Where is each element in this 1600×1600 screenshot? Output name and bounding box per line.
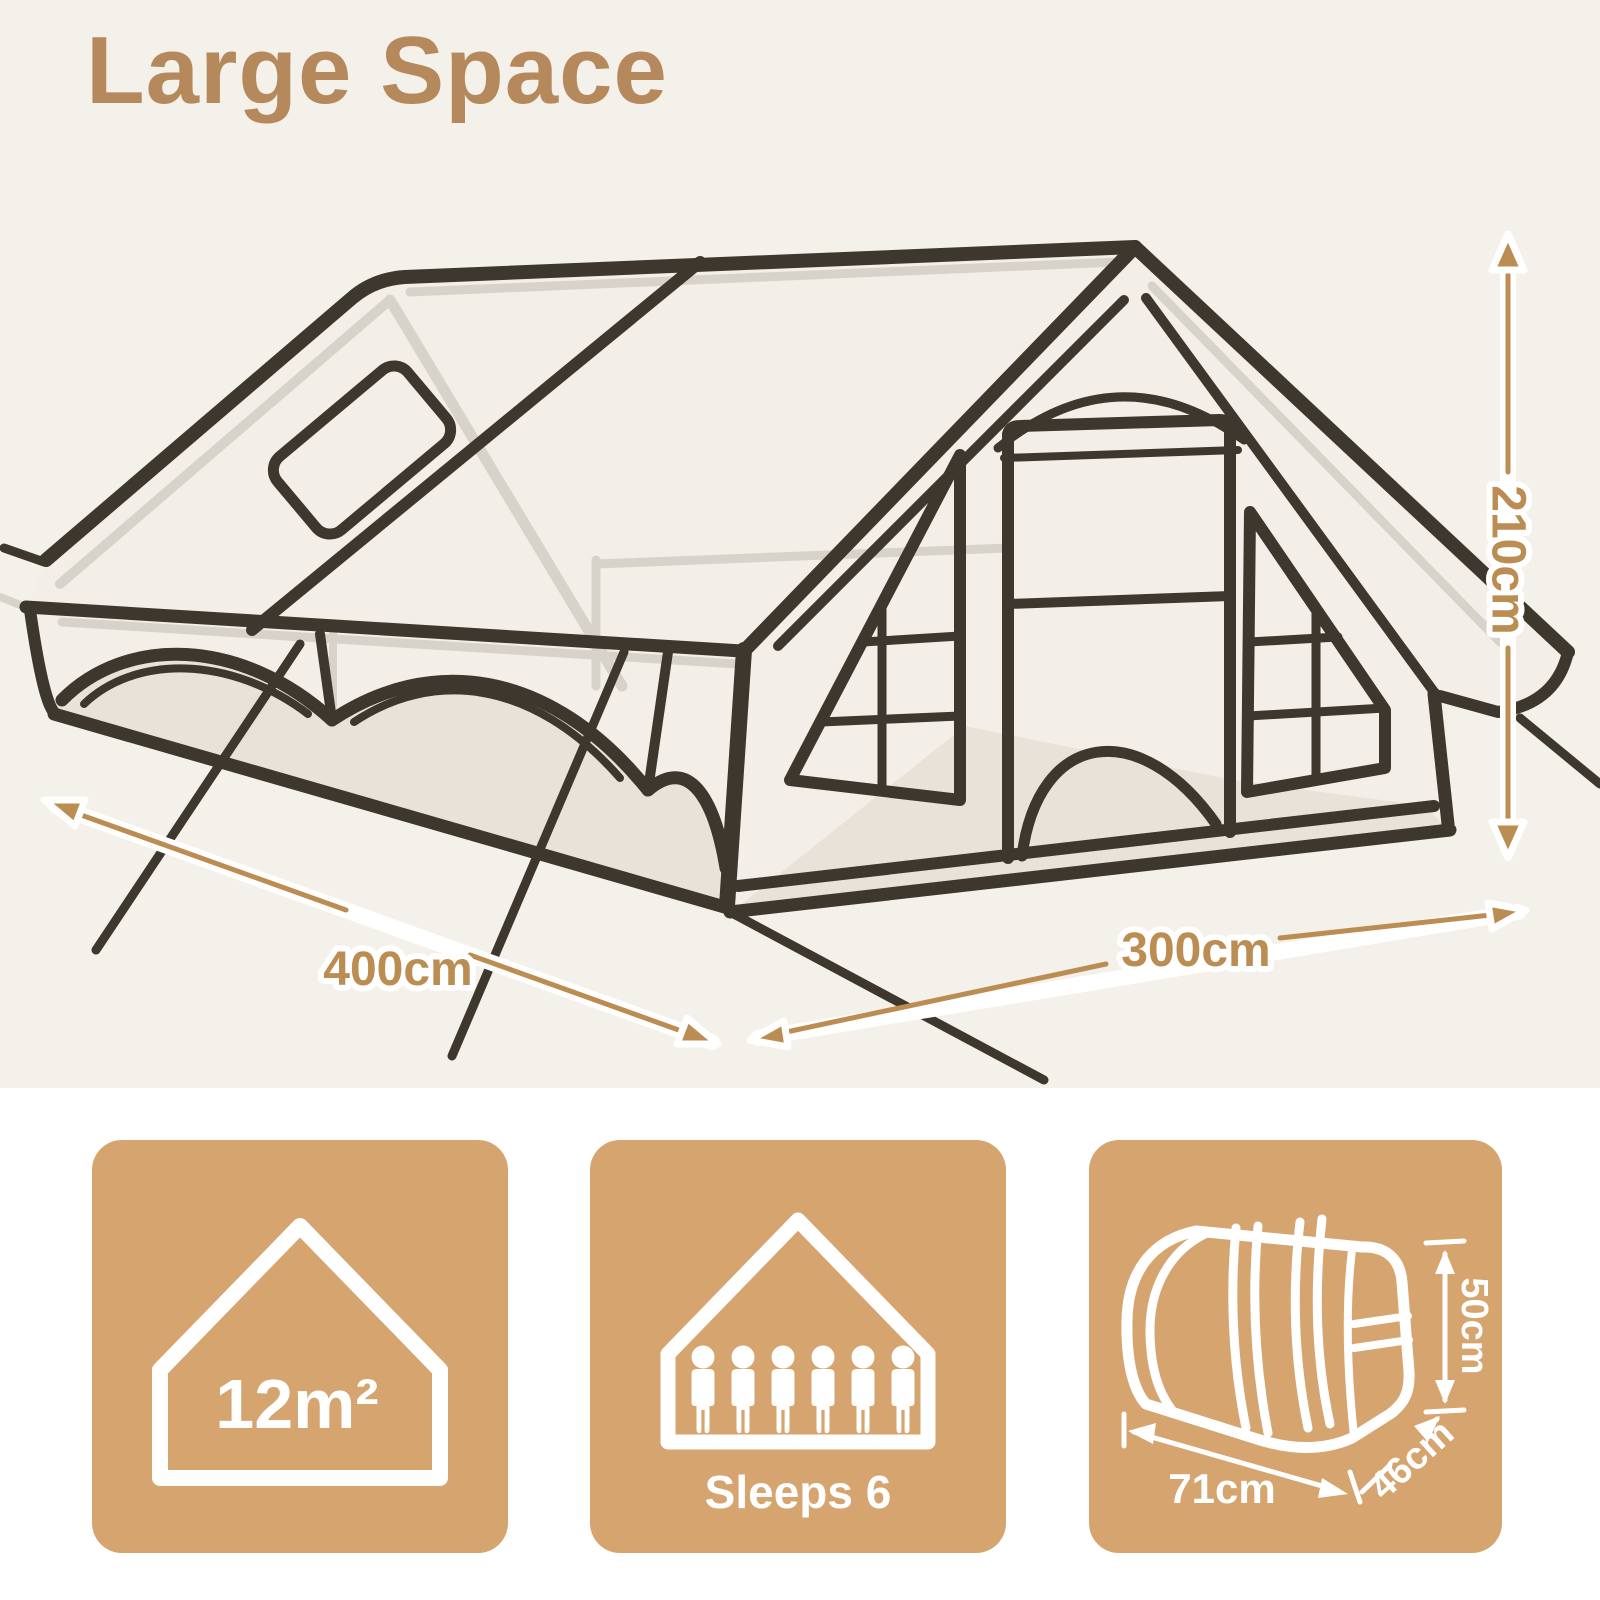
- infographic-canvas: Large Space: [0, 0, 1600, 1600]
- arrowhead-up-icon: [1492, 234, 1524, 270]
- capacity-label: Sleeps 6: [705, 1466, 892, 1518]
- card-background: [92, 1140, 508, 1553]
- arrowhead-downleft-icon: [750, 1021, 788, 1047]
- floor-area-value: 12m²: [215, 1365, 378, 1443]
- card-packed-size: 71cm 50cm 46cm: [1089, 1140, 1502, 1553]
- bag-length-label: 71cm: [1168, 1465, 1275, 1512]
- arrowhead-down-icon: [1492, 822, 1524, 858]
- scene-graphic: 210cm 400cm 300cm 12m²: [0, 0, 1600, 1600]
- arrowhead-downright-icon: [677, 1018, 718, 1044]
- depth-dimension-label: 300cm: [1121, 924, 1270, 977]
- bag-height-label: 50cm: [1453, 1277, 1495, 1374]
- dimension-height: 210cm: [1482, 234, 1535, 858]
- card-capacity: Sleeps 6: [590, 1140, 1006, 1553]
- height-dimension-label: 210cm: [1482, 485, 1535, 634]
- arrowhead-upright-icon: [1488, 903, 1526, 929]
- card-floor-area: 12m²: [92, 1140, 508, 1553]
- dimension-depth: 300cm: [750, 903, 1526, 1047]
- feature-cards: 12m²: [92, 1140, 1502, 1553]
- arrowhead-upleft-icon: [44, 800, 85, 826]
- width-dimension-label: 400cm: [323, 943, 472, 996]
- tent-illustration: [0, 246, 1600, 1080]
